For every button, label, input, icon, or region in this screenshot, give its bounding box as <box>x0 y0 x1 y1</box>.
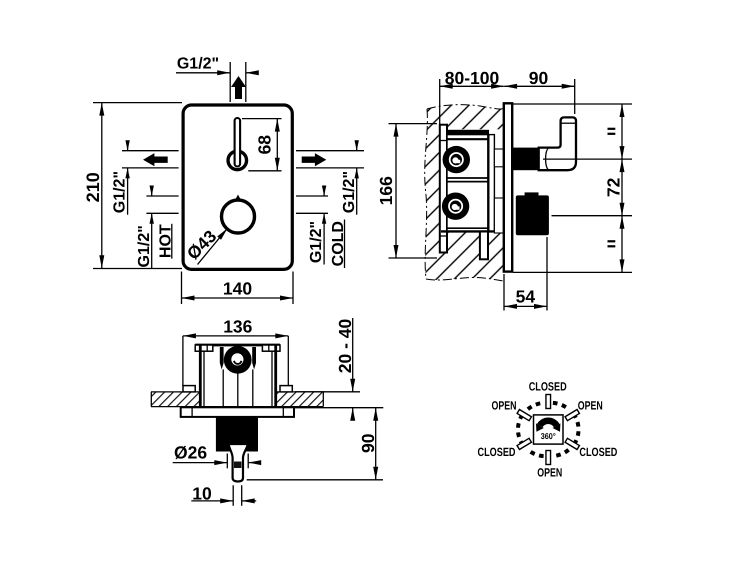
svg-text:G1/2": G1/2" <box>177 56 219 73</box>
svg-text:G1/2": G1/2" <box>341 171 358 213</box>
svg-text:140: 140 <box>223 279 252 299</box>
svg-text:72: 72 <box>603 177 623 197</box>
svg-text:CLOSED: CLOSED <box>478 445 516 459</box>
svg-text:CLOSED: CLOSED <box>529 379 567 393</box>
svg-text:54: 54 <box>516 287 536 307</box>
svg-text:Ø26: Ø26 <box>174 442 207 462</box>
svg-text:68: 68 <box>255 135 275 155</box>
svg-text:OPEN: OPEN <box>537 466 562 480</box>
svg-text:90: 90 <box>358 433 378 453</box>
svg-text:20 - 40: 20 - 40 <box>335 318 355 373</box>
svg-text:G1/2": G1/2" <box>308 221 325 263</box>
svg-text:10: 10 <box>192 483 212 503</box>
svg-text:166: 166 <box>376 176 396 205</box>
svg-text:G1/2": G1/2" <box>112 171 129 213</box>
svg-text:360°: 360° <box>541 431 557 441</box>
svg-text:OPEN: OPEN <box>492 398 517 412</box>
svg-text:OPEN: OPEN <box>578 398 603 412</box>
svg-text:80-100: 80-100 <box>445 68 500 88</box>
svg-text:136: 136 <box>223 317 252 337</box>
svg-text:CLOSED: CLOSED <box>579 445 617 459</box>
svg-text:210: 210 <box>83 172 103 202</box>
svg-text:90: 90 <box>529 68 549 88</box>
svg-text:G1/2": G1/2" <box>136 225 153 267</box>
